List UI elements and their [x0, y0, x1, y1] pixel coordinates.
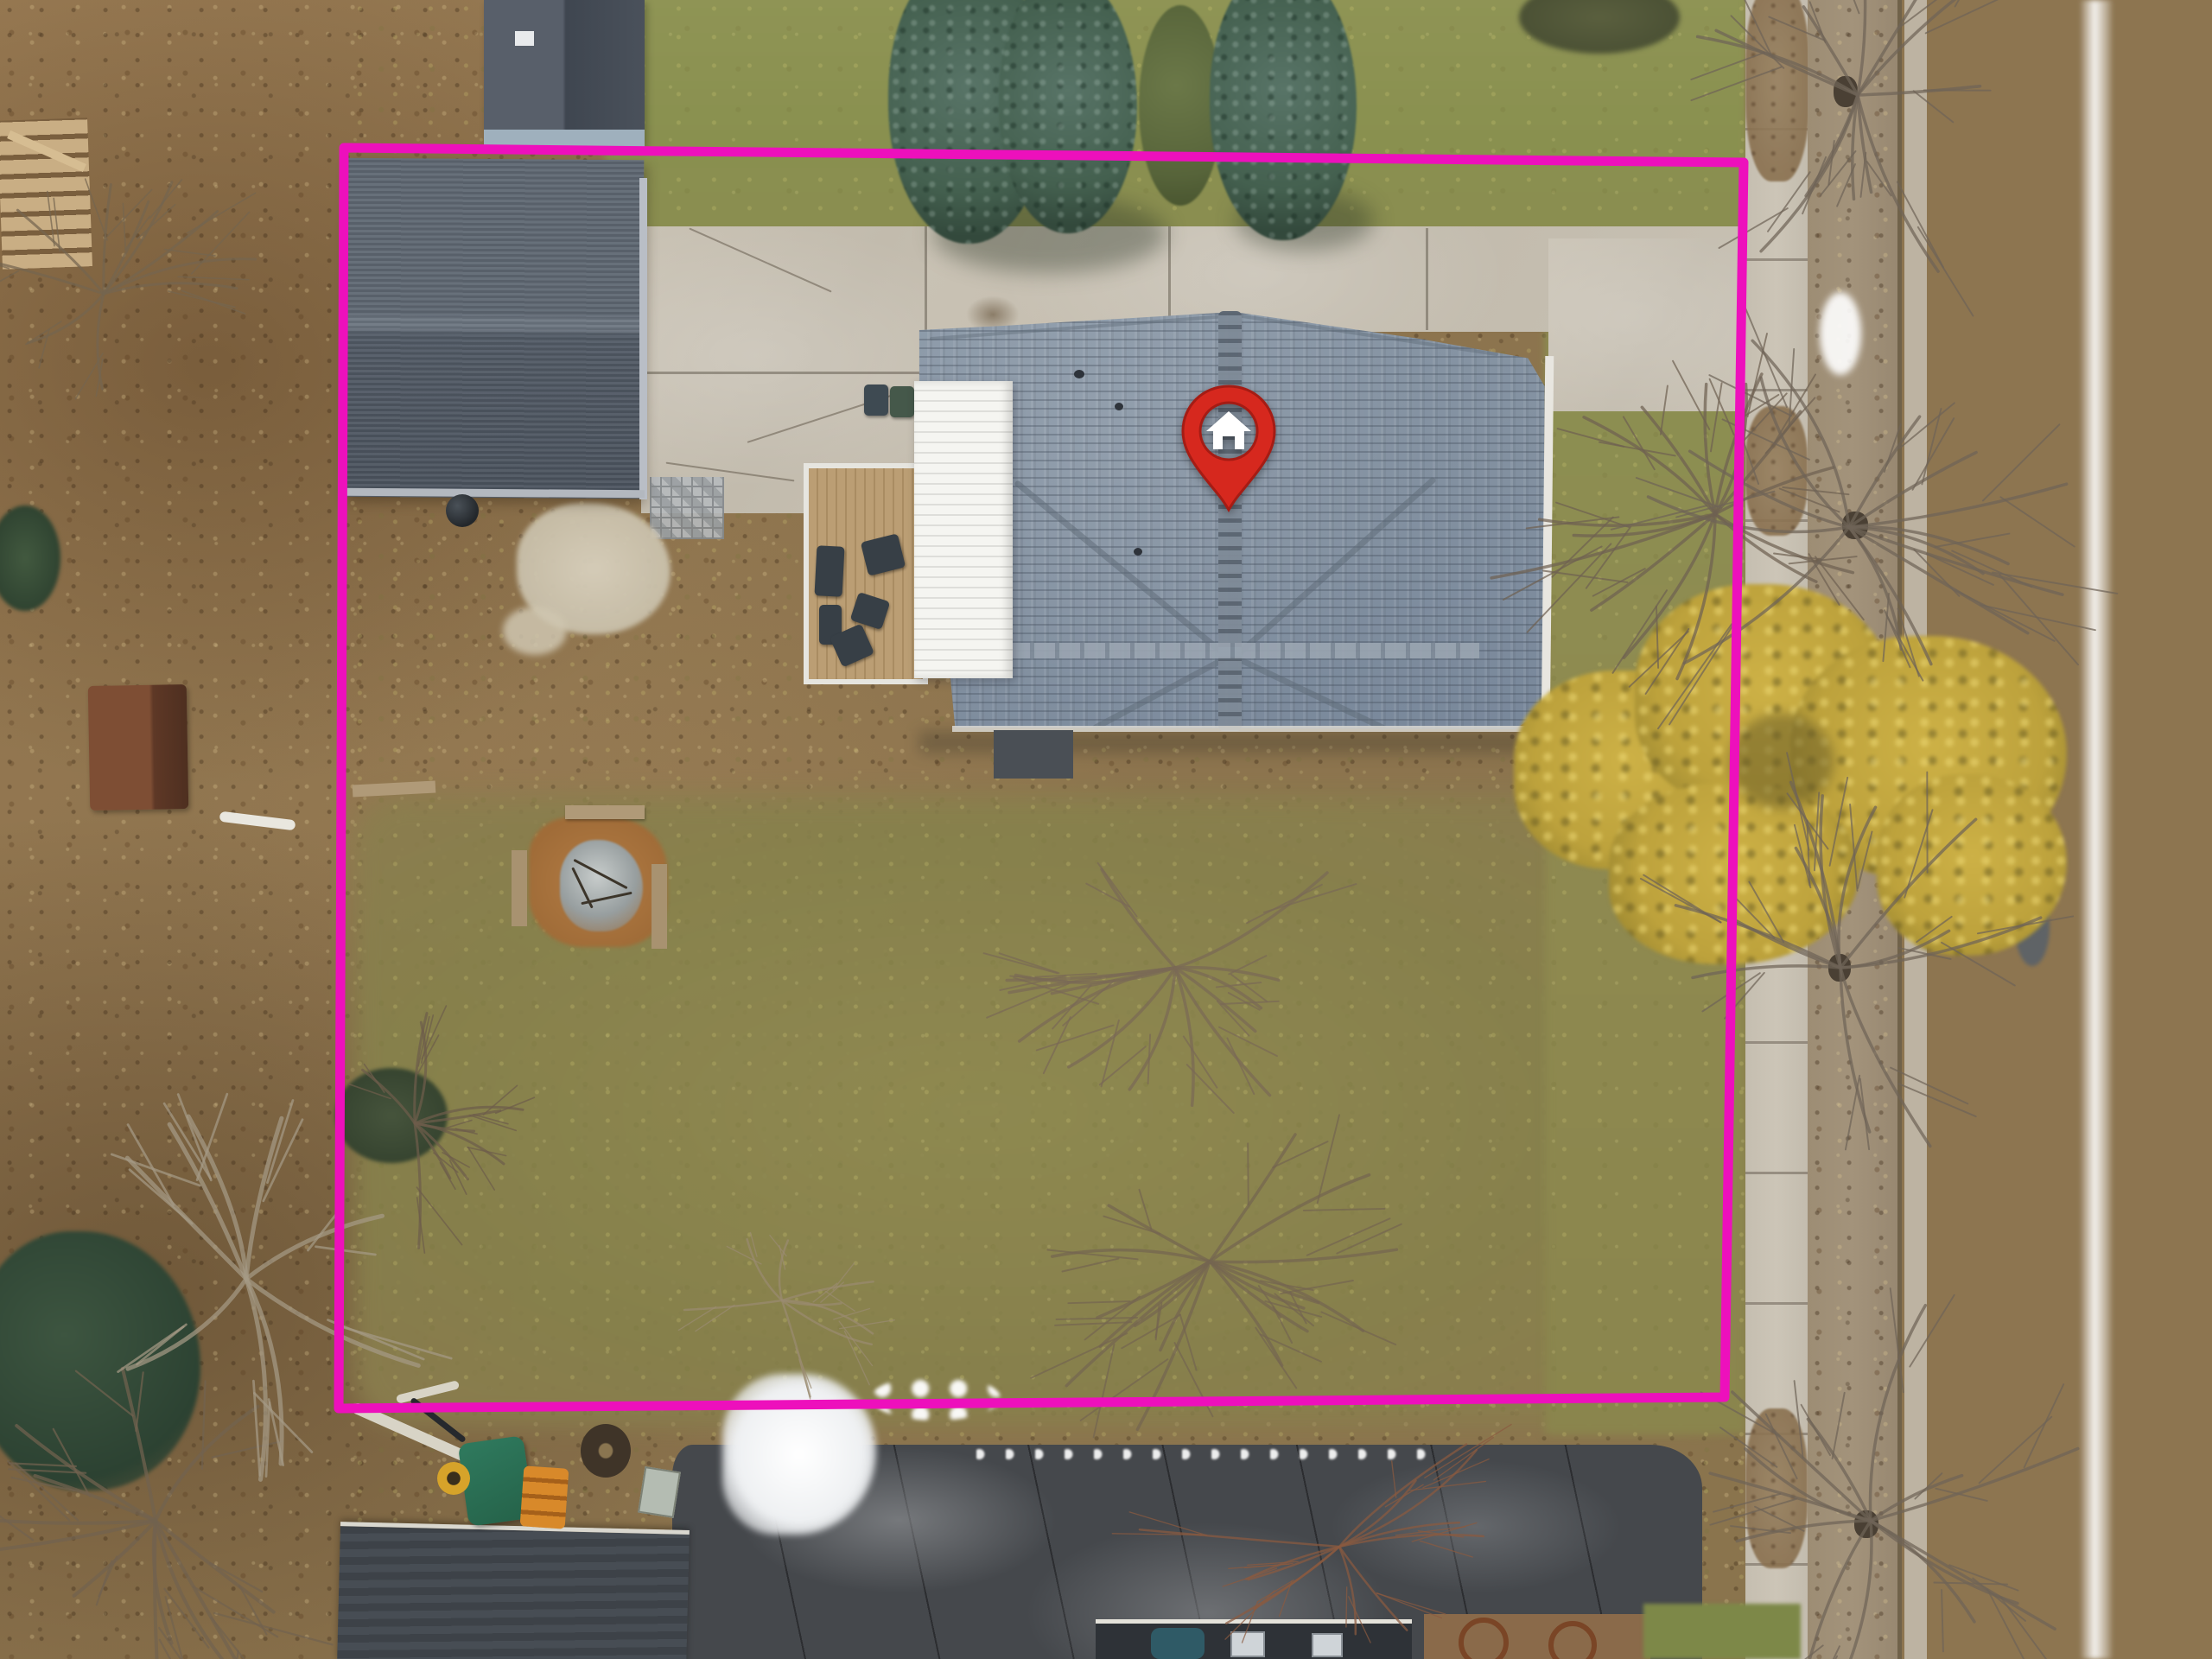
snow-edge: [976, 1445, 1443, 1467]
orange-crate: [520, 1465, 569, 1529]
paver-blocks: [650, 477, 724, 539]
timber-beam: [512, 850, 527, 926]
driveway-joint: [1426, 228, 1428, 330]
garage-gutter: [639, 178, 647, 499]
roof-vent: [1115, 403, 1123, 410]
leaves-on-sidewalk: [1745, 0, 1809, 181]
equipment-wheel: [437, 1462, 470, 1495]
driveway-joint: [1168, 226, 1171, 330]
shrub: [335, 1068, 448, 1163]
patio-joint: [641, 372, 932, 374]
skylight: [1230, 1631, 1265, 1657]
parked-vehicle: [1151, 1628, 1205, 1659]
roof-extension: [994, 730, 1073, 779]
shed-vent: [515, 31, 534, 46]
location-pin-icon[interactable]: [1180, 384, 1277, 513]
snow-patch: [1820, 292, 1861, 375]
bare-dirt-patch: [503, 607, 567, 655]
shed-roof-top: [484, 0, 645, 147]
autumn-tree-canopy: [1514, 567, 2081, 978]
shed-fascia: [484, 130, 645, 147]
roof-vent: [1134, 548, 1142, 556]
roof-ridge-vent: [1218, 311, 1242, 731]
trash-bin: [864, 385, 888, 416]
aerial-property-photo: [0, 0, 2212, 1659]
deck-sofa: [815, 545, 845, 597]
ice-line-on-street: [2081, 0, 2112, 1659]
snow-patch: [871, 1376, 1001, 1421]
grass-patch: [1643, 1604, 1801, 1659]
timber-beam: [565, 805, 645, 819]
pin-body: [1183, 386, 1274, 510]
skylight: [1312, 1633, 1343, 1657]
roof-ridge-cap: [1009, 643, 1479, 658]
leaves-on-sidewalk: [1745, 1408, 1808, 1568]
trash-bin: [890, 386, 914, 417]
porch-metal-roof: [914, 381, 1013, 678]
rusty-shed-roof: [88, 684, 188, 810]
round-object: [446, 494, 479, 527]
timber-beam: [652, 864, 667, 949]
whiteboard-panel: [638, 1466, 681, 1518]
neighbor-roof: [337, 1522, 690, 1659]
garage-roof: [343, 158, 645, 499]
driveway-joint: [925, 226, 927, 332]
hose-reel: [581, 1424, 631, 1478]
roof-vent: [1074, 370, 1084, 378]
garden-bed: [1424, 1614, 1650, 1659]
tree-trunk: [1834, 76, 1858, 107]
fire-pit-ash: [560, 840, 643, 931]
tree-trunk: [1854, 1510, 1878, 1538]
tree-trunk: [1842, 512, 1868, 539]
driveway-apron: [1548, 238, 1745, 411]
house-icon: [1206, 411, 1251, 449]
leaves-on-sidewalk: [1745, 406, 1808, 536]
